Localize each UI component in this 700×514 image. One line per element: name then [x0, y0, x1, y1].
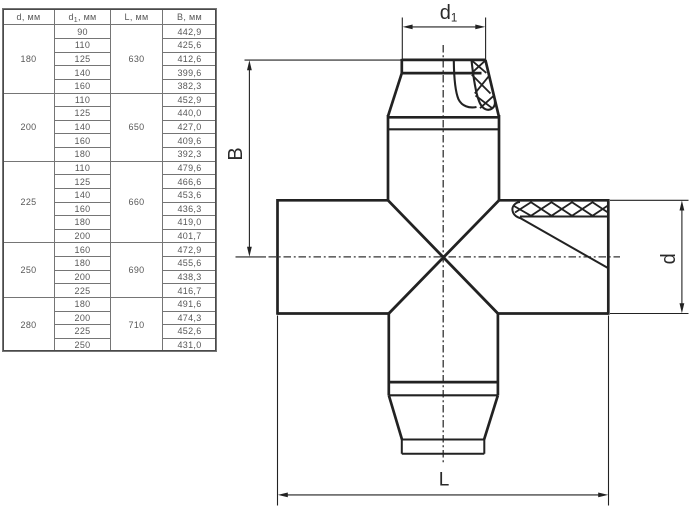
- svg-text:d: d: [658, 253, 680, 264]
- svg-text:B: B: [225, 147, 247, 160]
- svg-text:L: L: [439, 470, 450, 491]
- svg-text:d1: d1: [440, 2, 458, 25]
